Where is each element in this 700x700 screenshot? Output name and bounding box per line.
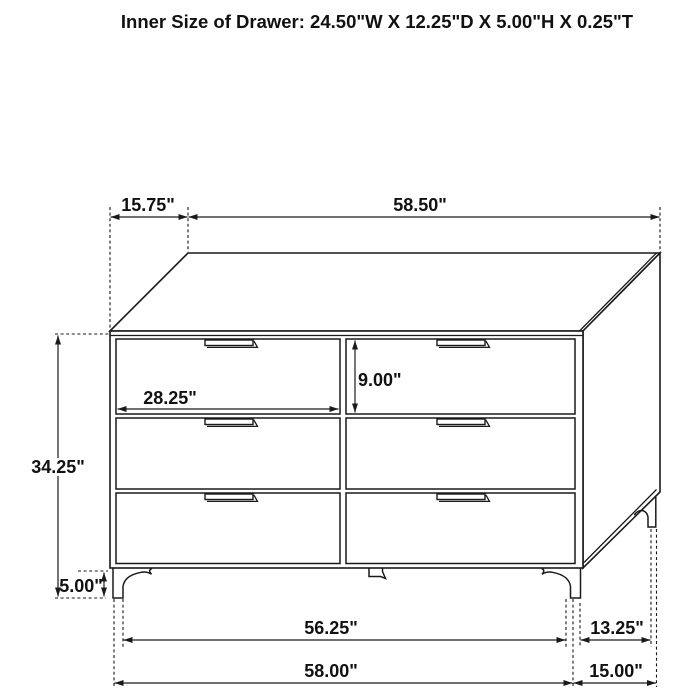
dimension-front-leg-span: 56.25" <box>124 618 566 640</box>
dim-label-top-side-offset: 15.75" <box>121 195 175 215</box>
dimension-side-leg-span: 13.25" <box>581 618 651 640</box>
drawer-middle-right <box>346 418 575 489</box>
dim-label-top-width: 58.50" <box>393 195 447 215</box>
dresser-drawing <box>110 253 660 598</box>
dim-label-body-height: 34.25" <box>31 457 85 477</box>
center-glide <box>369 568 386 579</box>
dim-label-drawer-height: 9.00" <box>358 370 402 390</box>
drawer-middle-left <box>116 418 340 489</box>
dim-label-side-leg-span: 13.25" <box>590 618 644 638</box>
dresser-top-surface <box>110 253 660 331</box>
dimension-front-width-overall: 58.00" <box>115 661 573 683</box>
dresser-dimension-diagram: Inner Size of Drawer: 24.50"W X 12.25"D … <box>0 0 700 700</box>
drawer-bottom-left <box>116 493 340 564</box>
dim-label-front-leg-span: 56.25" <box>304 618 358 638</box>
dimension-top-side-offset: 15.75" <box>111 195 188 217</box>
leg-front-right <box>542 569 581 599</box>
dim-label-side-depth-overall: 15.00" <box>589 661 643 681</box>
diagram-title: Inner Size of Drawer: 24.50"W X 12.25"D … <box>121 11 634 32</box>
dim-label-front-width-overall: 58.00" <box>304 661 358 681</box>
dim-label-drawer-width: 28.25" <box>143 388 197 408</box>
dimension-body-height: 34.25" <box>31 336 85 597</box>
leg-front-left <box>113 569 152 599</box>
drawer-bottom-right <box>346 493 575 564</box>
dimension-side-depth-overall: 15.00" <box>574 661 657 683</box>
dimension-leg-height: 5.00" <box>59 573 104 597</box>
dim-label-leg-height: 5.00" <box>59 576 103 596</box>
diagram-canvas: Inner Size of Drawer: 24.50"W X 12.25"D … <box>0 0 700 700</box>
dimension-top-width: 58.50" <box>189 195 660 217</box>
